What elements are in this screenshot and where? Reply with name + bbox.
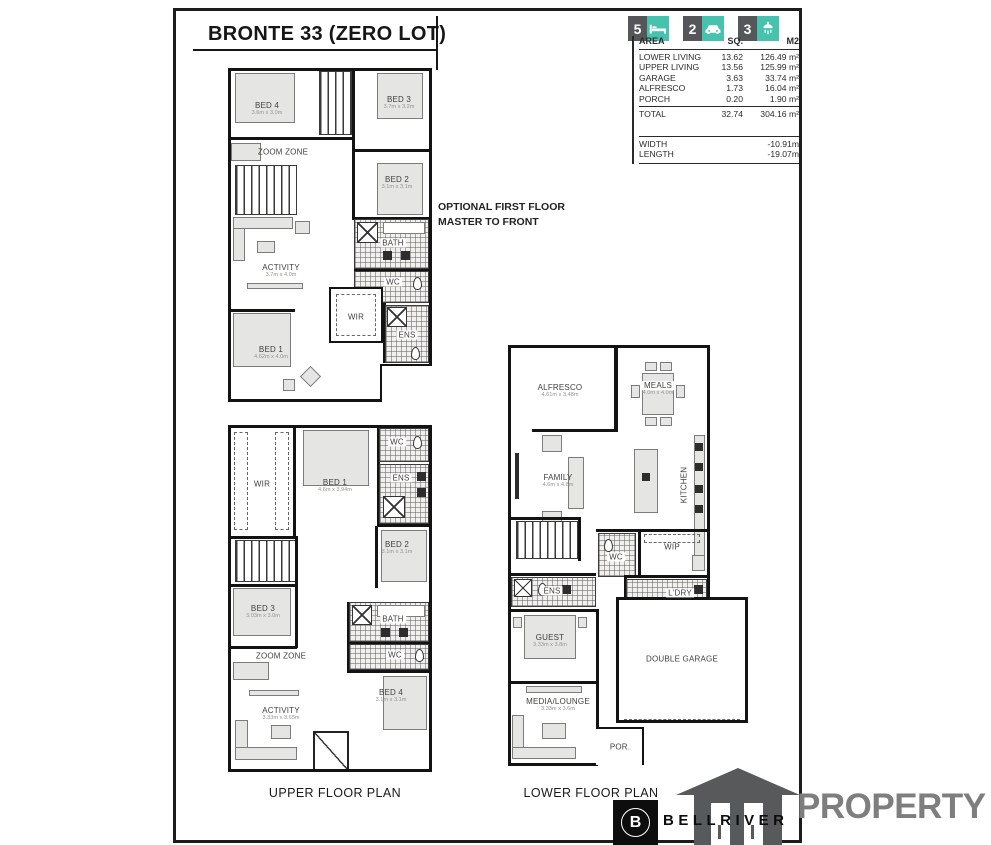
room-label: BED 1 xyxy=(254,345,288,354)
page-title: BRONTE 33 (ZERO LOT) xyxy=(208,23,446,46)
room-label: ENS xyxy=(541,586,562,595)
element: 0.20 xyxy=(711,94,743,105)
laundry-tub xyxy=(694,585,703,594)
room-label: WC xyxy=(386,650,404,659)
room-label: BATH xyxy=(380,238,406,247)
room-label: ZOOM ZONE xyxy=(258,147,308,156)
element: M2 xyxy=(743,36,799,47)
armchair xyxy=(295,221,310,234)
element xyxy=(763,24,772,28)
wall xyxy=(231,137,352,140)
room-label: WC xyxy=(388,437,406,446)
kitchen-island xyxy=(634,449,658,513)
wall xyxy=(508,345,511,766)
table-row: PORCH0.201.90 m² xyxy=(639,94,799,105)
tv-unit xyxy=(515,453,519,499)
room-label: 3.7m x 3.2m xyxy=(384,104,415,110)
oven xyxy=(695,463,703,471)
room-label: ENS xyxy=(390,473,411,482)
room-label: WC xyxy=(607,552,625,561)
element: ALFRESCO xyxy=(639,83,711,94)
room-label: ACTIVITY xyxy=(262,263,300,272)
garage-door xyxy=(624,719,740,720)
desk-furniture xyxy=(231,143,261,161)
wall xyxy=(354,149,429,152)
room-label: DOUBLE GARAGE xyxy=(646,654,718,663)
room-label: WIP xyxy=(664,542,680,551)
toilet xyxy=(413,436,422,449)
room-label: 3.33m x 3.8m xyxy=(533,642,567,648)
room-label: 4.6m x 4.8m xyxy=(543,482,574,488)
wall xyxy=(347,670,429,673)
element xyxy=(760,21,776,36)
wardrobe-shelving xyxy=(234,432,248,530)
room-label: 3.33m x 3.65m xyxy=(262,715,300,721)
bed-furniture xyxy=(381,530,427,582)
table-total-row: TOTAL32.74304.16 m² xyxy=(639,106,799,120)
room-label: BED 4 xyxy=(376,688,407,697)
wall xyxy=(596,529,707,532)
room-label: BATH xyxy=(380,614,406,623)
room-label: KITCHEN xyxy=(679,467,688,504)
element xyxy=(716,29,718,31)
shower xyxy=(514,579,532,597)
vanity-basin xyxy=(383,251,392,260)
toilet xyxy=(415,649,424,662)
element: -19.07m xyxy=(719,149,799,160)
wall xyxy=(231,536,297,539)
void-corner xyxy=(313,731,349,769)
property-wordmark: PROPERTY xyxy=(797,787,986,827)
room-label: WC xyxy=(607,552,625,561)
dining-chair xyxy=(645,417,657,426)
table-row: LOWER LIVING13.62126.49 m² xyxy=(639,52,799,63)
desk-furniture xyxy=(233,662,269,680)
wall xyxy=(352,71,355,219)
stairs xyxy=(235,540,297,582)
element: -10.91m xyxy=(719,139,799,150)
dining-chair xyxy=(631,385,640,398)
bellriver-logo-letter: B xyxy=(621,808,650,837)
room-label: ALFRESCO xyxy=(538,383,583,392)
room-label: BED 3 xyxy=(246,604,280,613)
property-house-icon xyxy=(676,768,800,795)
element: 13.56 xyxy=(711,62,743,73)
room-label: ZOOM ZONE xyxy=(258,147,308,156)
element: LENGTH xyxy=(639,149,719,160)
toilet xyxy=(604,539,613,552)
stairs xyxy=(235,165,297,215)
stool xyxy=(283,379,295,391)
room-label: BED 33.03m x 3.0m xyxy=(246,604,280,620)
room-label: KITCHEN xyxy=(679,467,688,504)
element xyxy=(650,25,652,33)
room-label: 3.6m x 3.0m xyxy=(252,110,283,116)
cooktop xyxy=(695,443,703,451)
element xyxy=(664,31,666,33)
area-table-header: AREA SQ. M2 xyxy=(639,36,799,50)
width-row: WIDTH-10.91m xyxy=(639,136,799,150)
room-label: 4.61m x 3.48m xyxy=(538,392,583,398)
sofa xyxy=(512,747,576,759)
tv-unit xyxy=(526,686,582,693)
fridge-space xyxy=(692,555,705,571)
element xyxy=(767,30,768,34)
plan-notch xyxy=(380,364,432,402)
room-label: 4.6m x 3.94m xyxy=(318,487,352,493)
coffee-table xyxy=(271,725,291,739)
side-table xyxy=(513,617,522,628)
stairs xyxy=(516,521,578,559)
appliance xyxy=(695,485,703,493)
room-label: WC xyxy=(388,437,406,446)
area-table: AREA SQ. M2 LOWER LIVING13.62126.49 m² U… xyxy=(632,36,799,164)
wall xyxy=(231,584,297,587)
wall xyxy=(578,517,581,561)
element xyxy=(770,30,771,33)
tv-unit xyxy=(247,283,303,289)
element xyxy=(639,120,799,134)
room-label: ACTIVITY3.33m x 3.65m xyxy=(262,706,300,722)
element: 13.62 xyxy=(711,52,743,63)
shower xyxy=(357,222,378,243)
element: 126.49 m² xyxy=(743,52,799,63)
room-label: BED 23.1m x 3.1m xyxy=(382,175,413,191)
element xyxy=(708,29,710,31)
room-label: FAMILY xyxy=(543,473,574,482)
room-label: BED 23.1m x 3.1m xyxy=(382,540,413,556)
optional-floor-note: OPTIONAL FIRST FLOOR MASTER TO FRONT xyxy=(438,200,565,230)
wall xyxy=(508,609,596,612)
room-label: WIR xyxy=(254,479,270,488)
element: UPPER LIVING xyxy=(639,62,711,73)
vanity-basin xyxy=(417,472,426,481)
wall xyxy=(231,646,297,649)
lower-floor-caption: LOWER FLOOR PLAN xyxy=(496,786,686,800)
element xyxy=(652,29,666,32)
wardrobe-shelving xyxy=(275,432,289,530)
room-label: MEALS4.0m x 4.0m xyxy=(642,381,674,397)
room-label: GUEST xyxy=(533,633,567,642)
upper-floor-plan: WIR BED 14.6m x 3.94m WC ENS BED 23.1m x… xyxy=(228,425,432,772)
element: 16.04 m² xyxy=(743,83,799,94)
room-label: BATH xyxy=(380,614,406,623)
room-label: BED 3 xyxy=(384,95,415,104)
dining-chair xyxy=(645,362,657,371)
room-label: ENS xyxy=(541,586,562,595)
room-label: 3.03m x 3.0m xyxy=(246,613,280,619)
wall xyxy=(375,526,378,588)
room-label: BED 14.6m x 3.94m xyxy=(318,478,352,494)
element: OPTIONAL FIRST FLOOR xyxy=(438,200,565,215)
vanity-basin xyxy=(381,628,390,637)
title-underline xyxy=(193,49,437,51)
room-label: BED 43.1m x 3.1m xyxy=(376,688,407,704)
side-table xyxy=(578,617,587,628)
bellriver-wordmark: BELLRIVER xyxy=(663,812,789,829)
room-label: ZOOM ZONE xyxy=(256,651,306,660)
kitchen-sink xyxy=(642,473,650,481)
room-label: WIR xyxy=(348,312,364,321)
element xyxy=(706,25,721,34)
room-label: GUEST3.33m x 3.8m xyxy=(533,633,567,649)
room-label: L'DRY xyxy=(666,588,694,597)
bellriver-logo: B xyxy=(613,800,658,845)
room-label: MEALS xyxy=(642,381,674,390)
lower-floor-plan: ALFRESCO4.61m x 3.48m MEALS4.0m x 4.0m F… xyxy=(508,345,748,769)
vanity-basin xyxy=(562,585,571,594)
element: 33.74 m² xyxy=(743,73,799,84)
shower xyxy=(387,307,407,327)
upper-floor-caption: UPPER FLOOR PLAN xyxy=(240,786,430,800)
element xyxy=(704,22,722,36)
armchair xyxy=(542,435,562,452)
room-label: WC xyxy=(386,650,404,659)
optional-first-floor-plan: BED 43.6m x 3.0m BED 33.7m x 3.2m ZOOM Z… xyxy=(228,68,432,402)
room-label: ENS xyxy=(396,330,417,339)
wall xyxy=(508,345,710,348)
element: 125.99 m² xyxy=(743,62,799,73)
wall xyxy=(231,309,295,312)
length-row: LENGTH-19.07m xyxy=(639,149,799,164)
room-label: WIR xyxy=(254,479,270,488)
element: 1.90 m² xyxy=(743,94,799,105)
room-label: ZOOM ZONE xyxy=(256,651,306,660)
stairs xyxy=(319,71,352,135)
room-label: WIP xyxy=(664,542,680,551)
element: 304.16 m² xyxy=(743,109,799,120)
dining-chair xyxy=(660,362,672,371)
room-label: 3.33m x 3.6m xyxy=(526,706,590,712)
shower xyxy=(352,605,372,625)
wall xyxy=(707,345,710,601)
room-label: BED 14.62m x 4.0m xyxy=(254,345,288,361)
element: PORCH xyxy=(639,94,711,105)
room-label: POR. xyxy=(610,742,630,751)
room-label: POR. xyxy=(610,742,630,751)
room-label: MEDIA/LOUNGE3.33m x 3.6m xyxy=(526,697,590,713)
dining-chair xyxy=(660,417,672,426)
wall xyxy=(377,524,429,527)
shower xyxy=(383,496,405,518)
room-label: BED 2 xyxy=(382,175,413,184)
room-label: FAMILY4.6m x 4.8m xyxy=(543,473,574,489)
room-label: BATH xyxy=(380,238,406,247)
room-label: WC xyxy=(384,277,402,286)
vanity-basin xyxy=(417,488,426,497)
room-label: 3.7m x 4.0m xyxy=(262,272,300,278)
room-label: ACTIVITY3.7m x 4.0m xyxy=(262,263,300,279)
wall xyxy=(614,345,618,431)
element: 3.63 xyxy=(711,73,743,84)
appliance xyxy=(695,505,703,513)
wall xyxy=(508,517,580,520)
room-label: 4.62m x 4.0m xyxy=(254,354,288,360)
room-label: 3.1m x 3.1m xyxy=(382,184,413,190)
room-label: ENS xyxy=(390,473,411,482)
table-row: ALFRESCO1.7316.04 m² xyxy=(639,83,799,94)
wall xyxy=(295,536,298,648)
element: SQ. xyxy=(711,36,743,47)
room-label: 3.1m x 3.1m xyxy=(382,549,413,555)
element xyxy=(765,30,766,33)
element: AREA xyxy=(639,36,711,47)
room-label: DOUBLE GARAGE xyxy=(646,654,718,663)
sofa xyxy=(235,747,297,760)
element xyxy=(767,22,769,24)
element xyxy=(652,26,656,28)
element: WIDTH xyxy=(639,139,719,150)
bathtub xyxy=(383,222,425,234)
room-label: BED 43.6m x 3.0m xyxy=(252,101,283,117)
wall xyxy=(293,428,296,536)
room-label: 3.1m x 3.1m xyxy=(376,697,407,703)
wall xyxy=(508,763,598,766)
element: 1.73 xyxy=(711,83,743,94)
room-label: L'DRY xyxy=(666,588,694,597)
tv-unit xyxy=(249,690,299,696)
room-label: BED 4 xyxy=(252,101,283,110)
room-label: WC xyxy=(384,277,402,286)
coffee-table xyxy=(257,241,275,253)
element xyxy=(650,31,652,33)
wall xyxy=(624,575,707,578)
dining-chair xyxy=(676,385,685,398)
title-divider-line xyxy=(436,16,438,70)
element: 32.74 xyxy=(711,109,743,120)
wall xyxy=(532,429,618,432)
element: MASTER TO FRONT xyxy=(438,215,565,230)
element: TOTAL xyxy=(639,109,711,120)
wall xyxy=(508,573,596,576)
element xyxy=(649,22,667,35)
room-label: BED 2 xyxy=(382,540,413,549)
room-label: MEDIA/LOUNGE xyxy=(526,697,590,706)
coffee-table xyxy=(542,723,566,739)
wall xyxy=(508,681,596,684)
table-row: UPPER LIVING13.56125.99 m² xyxy=(639,62,799,73)
room-label: WIR xyxy=(348,312,364,321)
room-label: ENS xyxy=(396,330,417,339)
element: GARAGE xyxy=(639,73,711,84)
room-label: ALFRESCO4.61m x 3.48m xyxy=(538,383,583,399)
sofa xyxy=(233,217,293,229)
vanity-basin xyxy=(401,251,410,260)
side-table xyxy=(300,366,321,387)
room-label: BED 1 xyxy=(318,478,352,487)
toilet xyxy=(413,277,422,290)
table-row: GARAGE3.6333.74 m² xyxy=(639,73,799,84)
room-label: BED 33.7m x 3.2m xyxy=(384,95,415,111)
toilet xyxy=(411,347,420,360)
room-label: ACTIVITY xyxy=(262,706,300,715)
vanity-basin xyxy=(399,628,408,637)
element: LOWER LIVING xyxy=(639,52,711,63)
room-label: 4.0m x 4.0m xyxy=(642,390,674,396)
wall xyxy=(638,531,641,575)
